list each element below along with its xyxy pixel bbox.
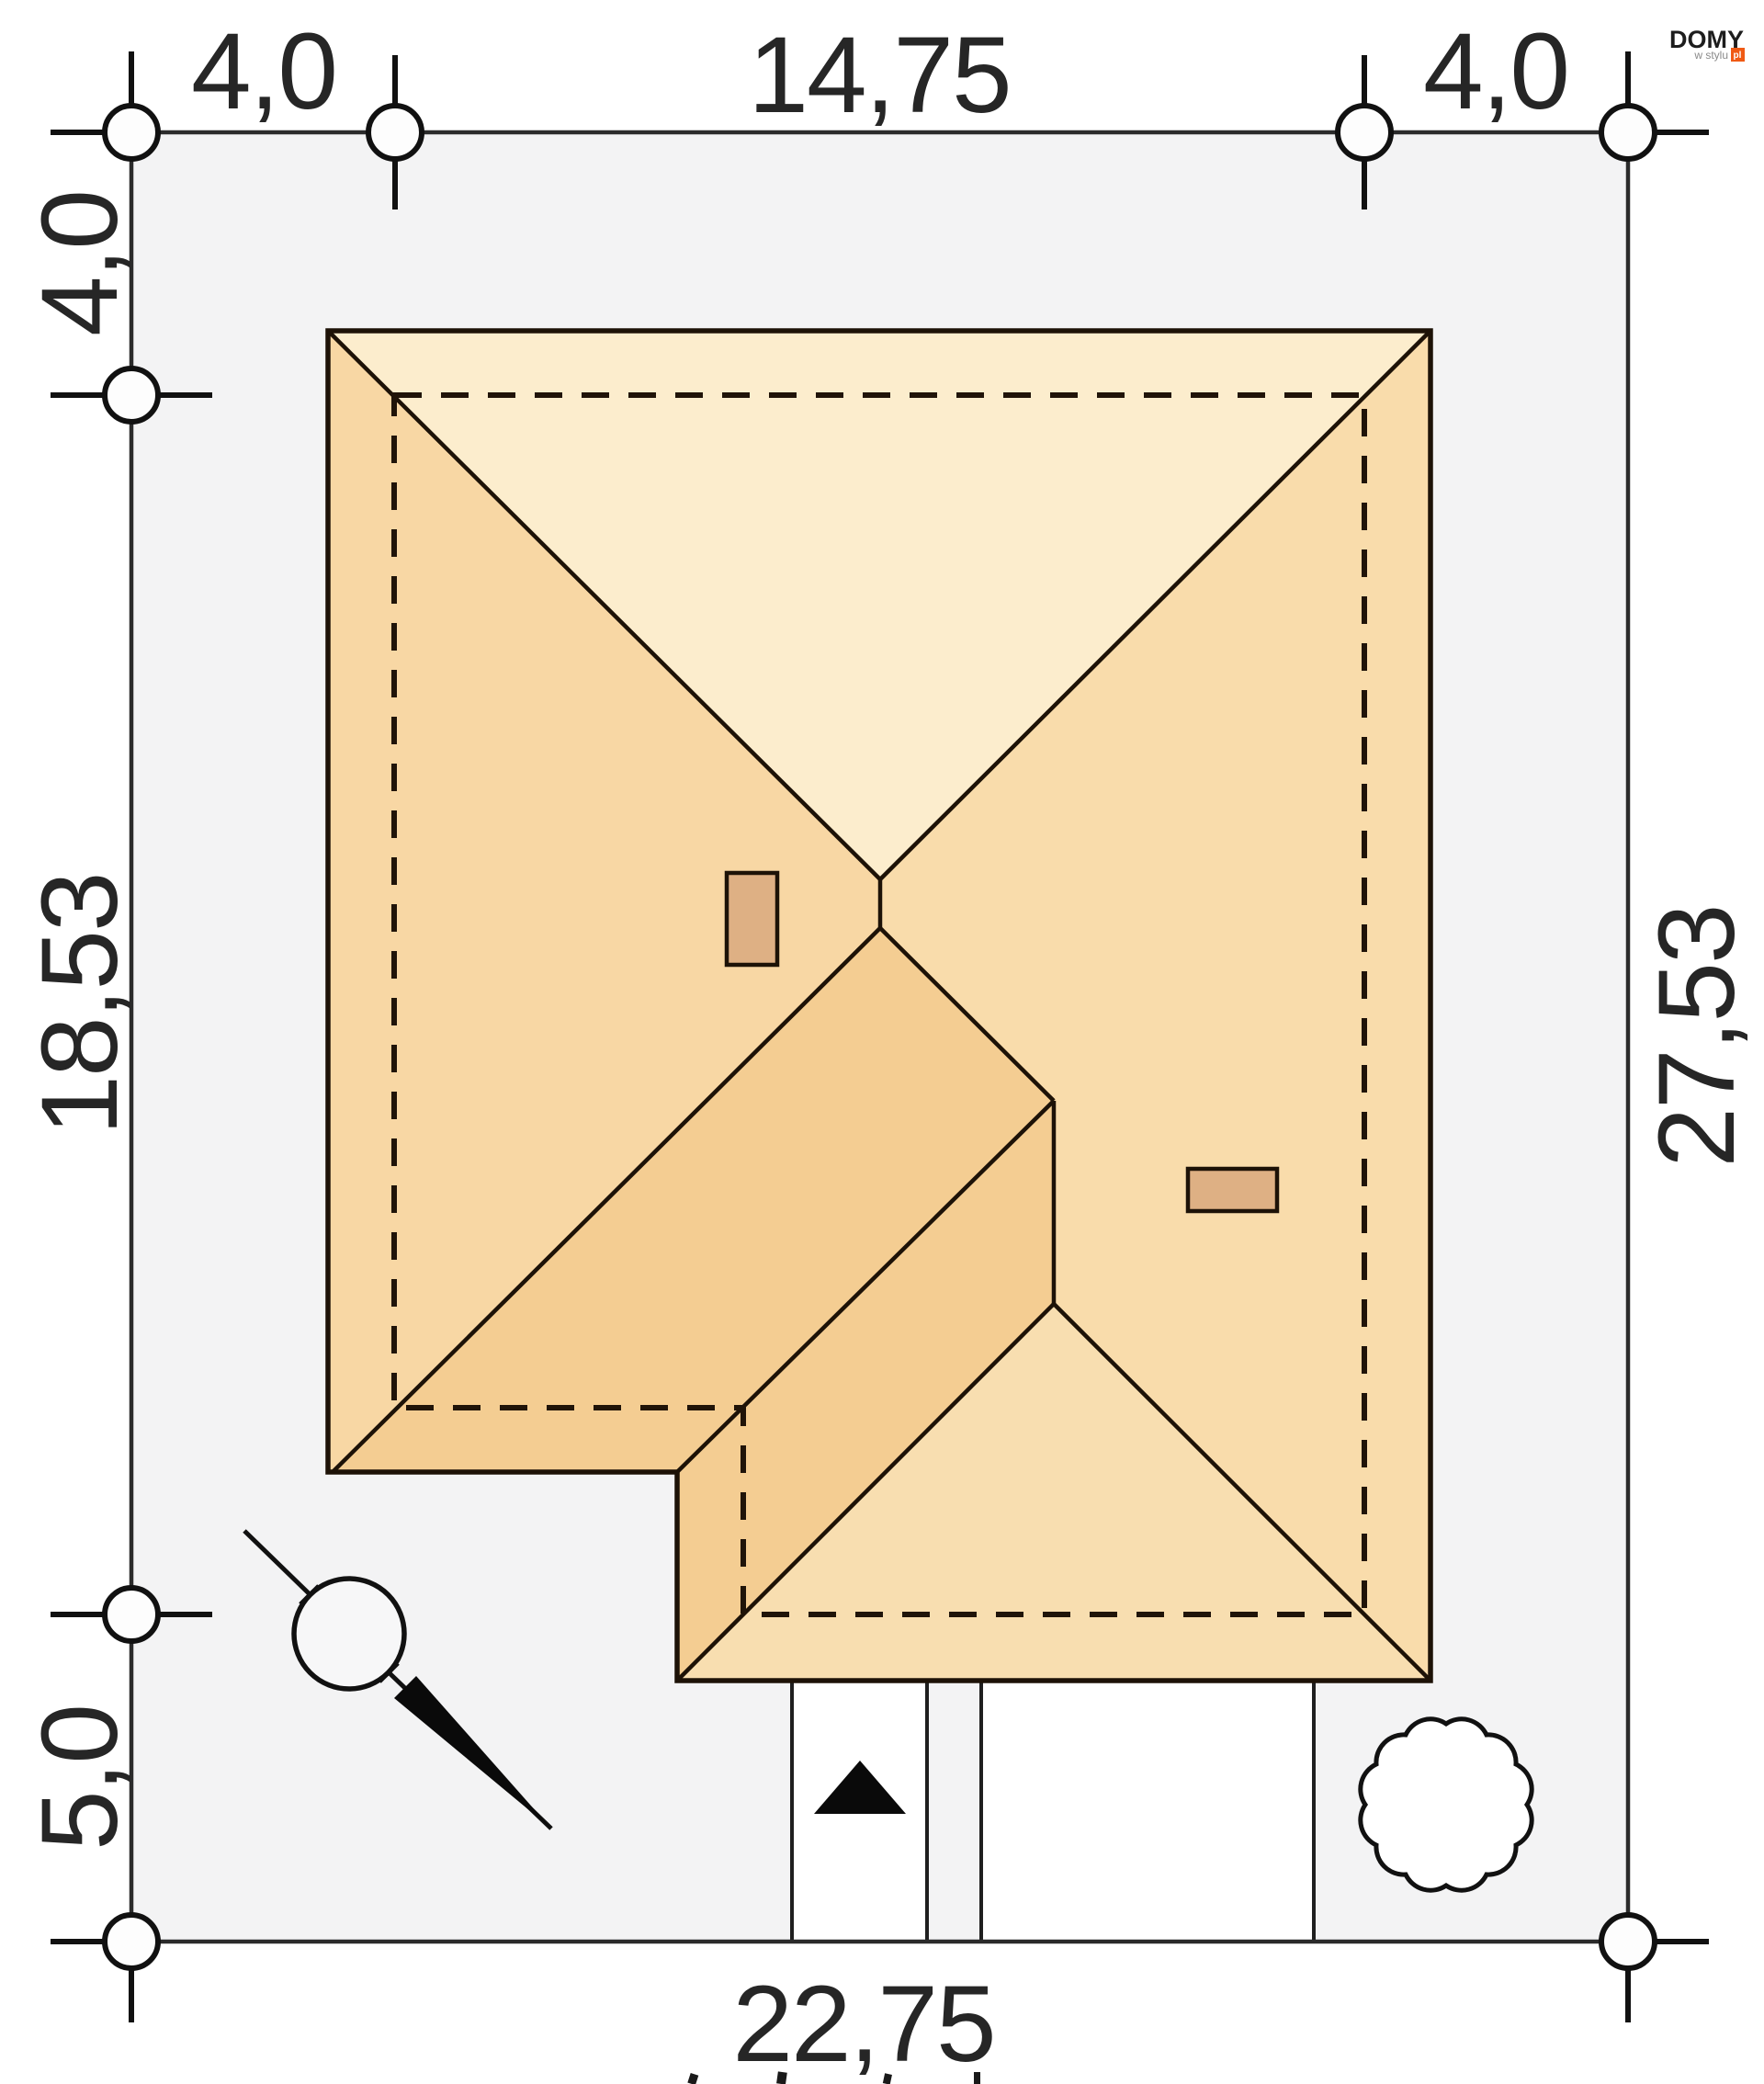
dim-bottom: 22,75 [732,1964,994,2084]
dim-left-bottom: 5,0 [19,1705,141,1851]
driveway [981,1681,1314,1942]
dim-left-top: 4,0 [19,191,141,336]
marker-top-setback [368,106,422,159]
dim-right: 27,53 [1636,905,1758,1167]
dim-top-right: 4,0 [1423,11,1568,132]
marker-bottom-left-corner [105,1915,158,1968]
dim-top-left: 4,0 [191,11,336,132]
chimney-1 [727,873,777,965]
site-plan-page: 4,0 14,75 4,0 4,0 18,53 5,0 27,53 22,75 … [0,0,1764,2084]
logo-subtitle-text: w stylu [1693,49,1728,62]
chimney-2 [1188,1169,1277,1211]
tree-icon [1361,1719,1532,1890]
marker-bottom-right-corner [1601,1915,1655,1968]
logo: DOMY w stylu pl [1669,26,1745,62]
dim-top-center: 14,75 [748,15,1010,136]
logo-tld-text: pl [1734,51,1742,61]
marker-top-right-corner [1601,106,1655,159]
marker-left-house-bottom [105,1588,158,1641]
dim-left-middle: 18,53 [19,873,141,1135]
marker-top-left-corner [105,106,158,159]
marker-left-setback [105,368,158,422]
marker-top-house-right [1338,106,1391,159]
site-plan-canvas: 4,0 14,75 4,0 4,0 18,53 5,0 27,53 22,75 … [0,0,1764,2084]
